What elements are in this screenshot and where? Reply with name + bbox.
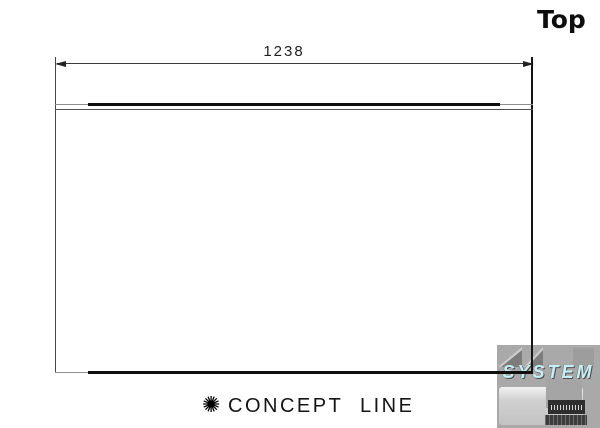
dimension-line <box>57 63 532 64</box>
worktop-bottom-edge-thick <box>88 371 533 374</box>
drawing-canvas: Top 1238 ✺ CONCEPT LINE SYSTEM <box>0 0 600 428</box>
watermark-logo: SYSTEM <box>497 345 600 428</box>
view-title: Top <box>537 5 586 34</box>
dimension-label: 1238 <box>252 43 316 60</box>
watermark-fine-print-lines <box>551 405 582 410</box>
brand-name: CONCEPT LINE <box>228 396 414 416</box>
watermark-dark-strip <box>545 415 587 425</box>
worktop-top-edge-thick <box>88 103 500 106</box>
worktop-top-inner-edge <box>55 109 533 110</box>
watermark-fine-print-box <box>548 400 585 414</box>
dimension-arrow-left-icon <box>55 61 66 67</box>
brand-star-icon: ✺ <box>202 395 220 417</box>
